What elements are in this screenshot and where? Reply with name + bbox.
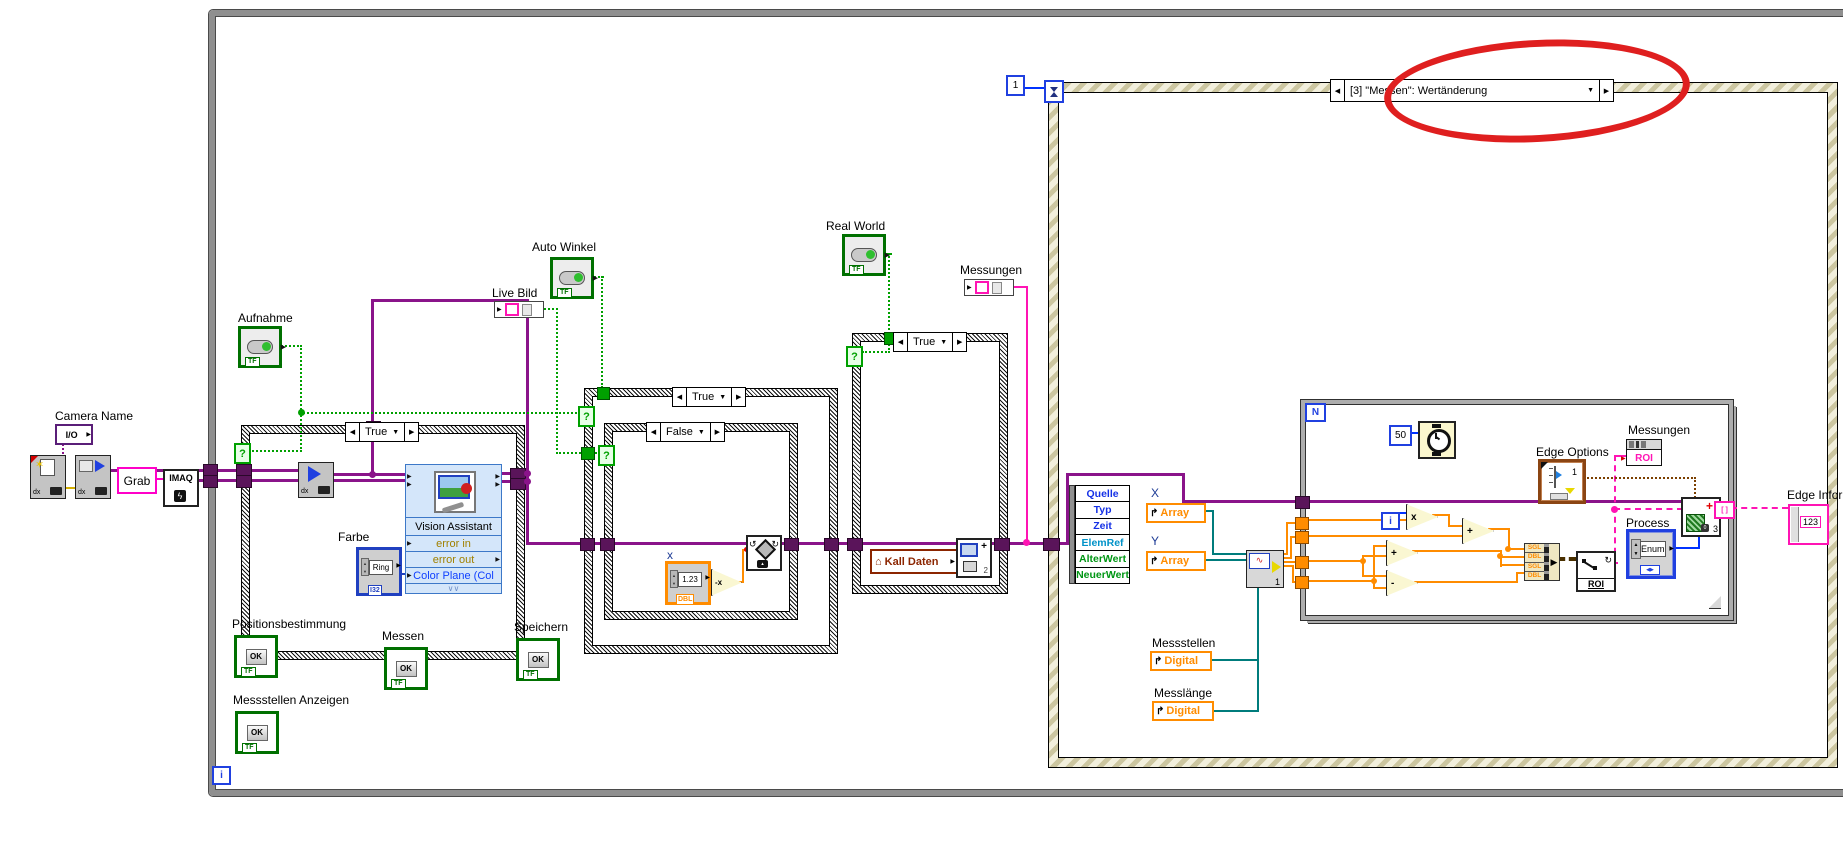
tunnel xyxy=(1295,531,1309,544)
bundle-node[interactable]: SGL DBL SGL DBL ▶ xyxy=(1524,543,1560,581)
while-iteration-terminal[interactable]: i xyxy=(212,766,231,785)
wire-junction xyxy=(1371,578,1377,584)
tunnel xyxy=(1295,576,1309,589)
messstellen-anzeigen-control[interactable]: OK TF xyxy=(235,711,279,754)
event-dropdown-icon[interactable]: ▼ xyxy=(1587,87,1594,94)
vision-assistant-vi[interactable]: ▶ ▶ ▶ ▶ Vision Assistant ▶error in error… xyxy=(405,464,502,594)
realworld-wire xyxy=(862,351,890,353)
aufnahme-control[interactable]: TF ▶ xyxy=(238,326,282,368)
orange-wire xyxy=(1307,535,1462,537)
prev-case-icon[interactable]: ◀ xyxy=(647,423,661,441)
ok-button-icon: OK xyxy=(396,661,417,677)
cw-arrow-icon: ↻ xyxy=(771,539,779,550)
chip-icon: ▴ xyxy=(757,560,768,568)
camera-icon xyxy=(50,487,62,495)
array-header xyxy=(1627,440,1661,450)
orange-wire xyxy=(1286,522,1288,555)
y-array-local[interactable]: ↱Array xyxy=(1146,551,1206,571)
roi-build-icon[interactable]: ↻ ROI xyxy=(1576,551,1616,592)
cross-icon: + xyxy=(1706,499,1713,513)
negate-out-wire xyxy=(742,549,744,583)
camera-name-control[interactable]: I/O ▶ xyxy=(55,424,93,445)
orange-wire xyxy=(1500,564,1526,566)
tunnel xyxy=(994,538,1010,551)
x-wire xyxy=(1212,510,1214,555)
tunnel xyxy=(824,538,839,551)
livebild-wire xyxy=(556,308,558,454)
aufnahme-wire xyxy=(300,412,302,452)
orange-wire xyxy=(1307,560,1365,562)
orange-wire xyxy=(1373,545,1388,547)
prev-case-icon[interactable]: ◀ xyxy=(673,388,687,406)
x-wire xyxy=(1212,553,1246,555)
case-dropdown-icon[interactable]: ▼ xyxy=(719,394,726,401)
event-data-node[interactable]: Quelle Typ Zeit ElemRef AlterWert NeuerW… xyxy=(1069,485,1130,584)
orange-wire xyxy=(1290,536,1292,559)
orange-wire xyxy=(1488,528,1510,530)
messlaenge-wire xyxy=(1210,710,1259,712)
display-icon xyxy=(975,281,989,294)
house-icon: ⌂ xyxy=(875,556,882,568)
farbe-ring-control[interactable]: ▲▼ Ring ▶ I32 xyxy=(356,547,402,596)
edge-options-control[interactable]: 1 xyxy=(1538,459,1586,504)
farbe-label: Farbe xyxy=(338,530,369,544)
roi-wire xyxy=(1614,508,1683,510)
speichern-control[interactable]: OK TF xyxy=(516,638,560,681)
livebild-wire xyxy=(556,452,584,454)
live-bild-terminal[interactable]: ▶ xyxy=(494,301,544,318)
image-wire xyxy=(1066,473,1184,476)
wire-junction xyxy=(1023,539,1030,546)
x-numeric-control[interactable]: ▲▼ 1.23 ▶ DBL xyxy=(665,561,711,605)
camera-icon xyxy=(95,487,107,495)
image-chip-icon xyxy=(960,543,978,557)
case-label-livebild[interactable]: ◀ False▼ ▶ xyxy=(646,422,725,442)
star-icon: ✶ xyxy=(35,458,44,471)
param-wire xyxy=(1257,586,1259,712)
cluster-wire xyxy=(1558,557,1576,561)
positionsbestimmung-control[interactable]: OK TF xyxy=(234,635,278,678)
image-chip-icon xyxy=(963,561,977,572)
imaq-overlay-icon[interactable]: + 2 xyxy=(956,538,992,578)
aufnahme-wire xyxy=(249,450,302,452)
prev-case-icon[interactable]: ◀ xyxy=(894,333,908,351)
case-selector-terminal[interactable]: ? xyxy=(598,445,615,466)
wire-junction xyxy=(524,478,531,485)
index-tunnel: [ ] xyxy=(1714,501,1735,519)
chip-icon: 0 xyxy=(1701,524,1709,532)
imaq-create-icon[interactable]: IMAQ ϟ xyxy=(163,469,199,507)
kall-daten-global[interactable]: ⌂ Kall Daten ▶ xyxy=(870,549,960,574)
spinner-icon: ▲▼ xyxy=(670,570,678,588)
real-world-label: Real World xyxy=(826,219,885,233)
messstellen-label: Messstellen xyxy=(1152,636,1215,650)
case-dropdown-icon[interactable]: ▼ xyxy=(940,339,947,346)
aufnahme-wire xyxy=(300,345,302,413)
real-world-control[interactable]: TF ▶ xyxy=(842,234,886,276)
aufnahme-label: Aufnahme xyxy=(238,311,293,325)
page-icon xyxy=(992,282,1002,294)
imaqdx-open-icon[interactable]: ✶ dx xyxy=(30,455,66,499)
tunnel xyxy=(1295,556,1309,569)
mini-chart-icon: ∿ xyxy=(1249,553,1270,569)
yellow-arrow-icon xyxy=(1272,561,1281,573)
wire-junction xyxy=(1611,506,1618,513)
imaqdx-configure-icon[interactable]: dx xyxy=(75,455,111,499)
wire-junction xyxy=(369,471,376,478)
case-label-aufnahme[interactable]: ◀ True▼ ▶ xyxy=(345,422,419,442)
messlaenge-label: Messlänge xyxy=(1154,686,1212,700)
camera-name-label: Camera Name xyxy=(55,409,133,423)
edge-options-wire xyxy=(1580,477,1696,479)
bundle-out-icon: ▶ xyxy=(1549,544,1559,580)
spinner-icon: ▲▼ xyxy=(361,558,369,576)
messstellen-local[interactable]: ↱Digital xyxy=(1150,651,1212,671)
x-array-label: X xyxy=(1151,486,1159,500)
orange-wire xyxy=(1307,580,1376,582)
orange-wire xyxy=(1414,581,1518,583)
aufnahme-wire xyxy=(300,412,584,414)
next-case-icon[interactable]: ▶ xyxy=(731,388,745,406)
toggle-icon xyxy=(559,271,585,285)
next-case-icon[interactable]: ▶ xyxy=(952,333,966,351)
timeout-wire xyxy=(1022,87,1046,89)
play-icon xyxy=(308,466,321,482)
case-selector-terminal[interactable]: ? xyxy=(578,406,595,427)
timeout-terminal[interactable] xyxy=(1044,80,1064,103)
wire-junction xyxy=(524,470,531,477)
loop-count-terminal[interactable]: N xyxy=(1305,403,1326,422)
output-arrow-icon: ▶ xyxy=(86,431,91,438)
messungen-top-terminal[interactable]: ▶ xyxy=(964,279,1014,296)
messstellen-anzeigen-label: Messstellen Anzeigen xyxy=(233,693,349,707)
image-wire xyxy=(526,542,748,545)
imaq-rotate-icon[interactable]: ↺ ↻ ▴ xyxy=(746,535,782,571)
case-label-autowinkel[interactable]: ◀ True▼ ▶ xyxy=(672,387,746,407)
y-wire xyxy=(1200,559,1246,561)
wire-junction xyxy=(1505,546,1511,552)
image-riser xyxy=(371,300,374,474)
display-icon xyxy=(505,303,519,316)
positionsbestimmung-label: Positionsbestimmung xyxy=(232,617,346,631)
messstellen-wire xyxy=(1208,659,1259,661)
cw-arrow-icon: ↻ xyxy=(1604,555,1612,566)
image-wire xyxy=(778,542,958,545)
orange-wire xyxy=(1362,575,1388,577)
next-case-icon[interactable]: ▶ xyxy=(710,423,724,441)
edge-out-wire xyxy=(1731,507,1788,509)
page-icon xyxy=(522,304,532,316)
toggle-icon xyxy=(247,340,273,354)
orange-wire xyxy=(1373,587,1388,589)
speichern-label: Speichern xyxy=(514,620,568,634)
case-selector-terminal[interactable]: ? xyxy=(846,346,863,367)
messen-label: Messen xyxy=(382,629,424,643)
auto-winkel-label: Auto Winkel xyxy=(532,240,596,254)
messungen-wire xyxy=(1026,286,1028,542)
tunnel xyxy=(203,475,218,488)
grab-string-constant[interactable]: Grab xyxy=(117,467,157,494)
camera-icon xyxy=(318,486,330,494)
wait-ms-icon[interactable] xyxy=(1418,421,1456,459)
next-event-icon[interactable]: ▶ xyxy=(1599,80,1613,101)
tunnel xyxy=(1043,538,1060,551)
case-label-realworld[interactable]: ◀ True▼ ▶ xyxy=(893,332,967,352)
edge-options-label: Edge Options xyxy=(1536,445,1609,459)
enum-cycle-icon: ◀▶ xyxy=(1640,565,1660,575)
image-bus xyxy=(526,299,529,545)
orange-wire xyxy=(1412,550,1502,552)
case-dropdown-icon[interactable]: ▼ xyxy=(392,429,399,436)
ok-button-icon: OK xyxy=(246,649,267,665)
ccw-arrow-icon: ↺ xyxy=(749,539,757,550)
toggle-icon xyxy=(851,248,877,262)
wire-junction xyxy=(1360,558,1366,564)
x-array-local[interactable]: ↱Array xyxy=(1146,503,1206,523)
wire-junction xyxy=(1497,553,1503,559)
event-selector-label[interactable]: ◀ [3] "Messen": Wertänderung▼ ▶ xyxy=(1330,79,1614,102)
vision-assistant-icon xyxy=(434,471,476,513)
prev-event-icon[interactable]: ◀ xyxy=(1331,80,1345,101)
process-label: Process xyxy=(1626,516,1669,530)
tunnel xyxy=(236,475,252,488)
edge-options-wire xyxy=(1694,477,1696,498)
prev-case-icon[interactable]: ◀ xyxy=(346,423,360,441)
messen-control[interactable]: OK TF xyxy=(384,647,428,690)
image-wire xyxy=(1182,473,1185,503)
array-index-strip xyxy=(1791,507,1799,542)
hourglass-icon xyxy=(1050,92,1058,97)
auto-winkel-control[interactable]: TF ▶ xyxy=(550,257,594,299)
tunnel xyxy=(847,538,863,551)
wire-junction xyxy=(298,409,305,416)
tunnel xyxy=(600,538,615,551)
for-loop-corner xyxy=(1709,596,1721,608)
clock-icon xyxy=(1427,429,1451,453)
case-selector-terminal[interactable]: ? xyxy=(234,443,251,464)
process-enum-control[interactable]: ▲▼ Enum ▶ ◀▶ xyxy=(1626,529,1676,579)
edge-inform-indicator[interactable]: 123 xyxy=(1788,504,1829,545)
orange-wire xyxy=(1448,525,1462,527)
ok-button-icon: OK xyxy=(247,725,268,741)
tunnel xyxy=(1295,496,1310,509)
messungen-top-label: Messungen xyxy=(960,263,1022,277)
bool-tunnel xyxy=(597,387,610,400)
tunnel xyxy=(1295,517,1309,530)
interpolate-vi-icon[interactable]: ∿ 1 xyxy=(1246,550,1284,588)
imaqdx-grab-icon[interactable]: dx xyxy=(298,462,334,498)
autowinkel-wire xyxy=(601,276,603,388)
next-case-icon[interactable]: ▶ xyxy=(404,423,418,441)
play-icon xyxy=(95,460,105,472)
wait-constant[interactable]: 50 xyxy=(1389,425,1412,446)
for-iteration-terminal[interactable]: i xyxy=(1381,512,1400,530)
messlaenge-local[interactable]: ↱Digital xyxy=(1152,701,1214,721)
bool-tunnel xyxy=(581,447,595,460)
image-wire xyxy=(1182,500,1683,503)
y-array-label: Y xyxy=(1151,534,1159,548)
tunnel xyxy=(784,538,799,551)
x-label: x xyxy=(667,548,673,562)
tunnel xyxy=(580,538,595,551)
orange-wire xyxy=(1500,556,1526,558)
case-dropdown-icon[interactable]: ▼ xyxy=(698,429,705,436)
live-bild-label: Live Bild xyxy=(492,286,537,300)
messungen-roi-indicator[interactable]: ROI ▶ xyxy=(1626,439,1662,466)
timeout-constant[interactable]: 1 xyxy=(1006,75,1025,96)
slider-pointer-icon xyxy=(1556,471,1562,479)
bolt-icon: ϟ xyxy=(174,490,186,502)
messungen-roi-label: Messungen xyxy=(1628,423,1690,437)
orange-wire xyxy=(1362,555,1388,557)
edge-inform-label: Edge Inform xyxy=(1787,488,1843,502)
ok-button-icon: OK xyxy=(528,652,549,668)
labview-block-diagram: { "colors": { "image_wire": "#8A148A", "… xyxy=(0,0,1843,852)
